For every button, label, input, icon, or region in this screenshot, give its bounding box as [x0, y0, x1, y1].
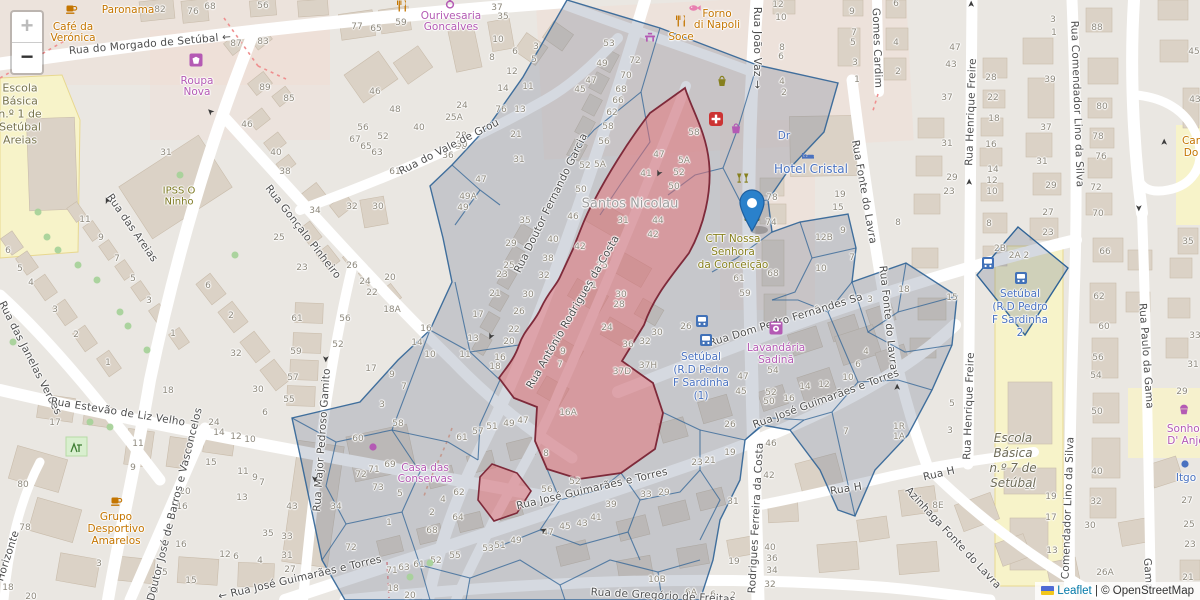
- house-number: 1A: [893, 432, 905, 442]
- house-number: 32: [346, 202, 357, 212]
- house-number: 4: [893, 38, 899, 48]
- poi-label-roupa-nova: Nova: [184, 86, 211, 98]
- house-number: 14: [497, 84, 508, 94]
- house-number: 56: [598, 137, 609, 147]
- house-number: 4: [863, 347, 869, 357]
- area-label: n.º 7 de: [989, 461, 1036, 475]
- house-number: 3: [96, 559, 102, 569]
- house-number: 76: [1095, 152, 1106, 162]
- house-number: 10: [986, 187, 997, 197]
- house-number: 10: [775, 13, 786, 23]
- house-number: 3: [379, 400, 385, 410]
- house-number: 7: [557, 360, 563, 370]
- lavandaria-sadina-machine-icon: [770, 322, 783, 335]
- house-number: 82: [154, 5, 165, 15]
- waste-basket-basket-icon: [716, 75, 729, 88]
- area-label: Escola: [2, 82, 37, 95]
- house-number: 3: [852, 58, 858, 68]
- house-number: 31: [160, 148, 171, 158]
- house-number: 24: [456, 101, 467, 111]
- house-number: 44: [652, 216, 663, 226]
- house-number: 35: [262, 529, 273, 539]
- map-marker[interactable]: [737, 189, 771, 240]
- house-number: 12: [986, 176, 997, 186]
- house-number: 1: [105, 358, 111, 368]
- playground-icon: [66, 437, 87, 456]
- house-number: 33: [1189, 331, 1200, 341]
- area-label: Areias: [3, 134, 37, 147]
- house-number: 33: [281, 532, 292, 542]
- house-number: 52: [673, 168, 684, 178]
- poi-label-ctt-post-office: da Conceição: [698, 259, 769, 271]
- house-number: 12B: [815, 233, 833, 243]
- house-number: 8: [489, 53, 495, 63]
- house-number: 5: [397, 489, 403, 499]
- house-number: 40: [270, 148, 281, 158]
- house-number: 23: [296, 263, 307, 273]
- ourivesaria-goncalves-ring-icon: [444, 0, 457, 10]
- house-number: 40: [413, 123, 424, 133]
- house-number: 4: [257, 556, 263, 566]
- area-label: Ninho: [164, 197, 193, 208]
- house-number: 62: [453, 488, 464, 498]
- house-number: 41: [590, 513, 601, 523]
- house-number: 5: [850, 38, 856, 48]
- transit-stop-label-setubal-rd-pedro-f-sardinha-1: F Sardinha: [673, 377, 729, 389]
- house-number: 45: [735, 387, 746, 397]
- house-number: 47: [585, 76, 596, 86]
- transit-stop-label-setubal-rd-pedro-f-sardinha-1: Setúbal: [681, 351, 721, 363]
- house-number: 39: [605, 500, 616, 510]
- house-number: 32: [639, 337, 650, 347]
- area-label: Santos Nicolau: [582, 197, 679, 212]
- soce-bench-bench-icon: [644, 31, 657, 43]
- house-number: 6: [893, 0, 899, 9]
- house-number: 48: [389, 105, 400, 115]
- house-number: 31: [513, 155, 524, 165]
- house-number: 2: [73, 330, 79, 340]
- house-number: 33: [640, 490, 651, 500]
- house-number: 2: [895, 67, 901, 77]
- house-number: 1: [386, 518, 392, 528]
- house-number: 11: [132, 439, 143, 449]
- grupo-desportivo-amarelos-cup-icon: [110, 495, 123, 508]
- house-number: 16: [420, 324, 431, 334]
- transit-stop-label-setubal-rd-pedro-f-sardinha-2: 2: [1017, 327, 1024, 339]
- house-number: 2B: [994, 244, 1006, 254]
- oneway-arrow-icon: ➤: [309, 475, 319, 483]
- poi-label-grupo-desportivo-amarelos: Amarelos: [91, 535, 140, 547]
- house-number: 7: [849, 253, 855, 263]
- transit-stop-label-setubal-rd-pedro-f-sardinha-2: Setúbal: [1000, 288, 1040, 300]
- house-number: 19: [1045, 492, 1056, 502]
- house-number: 16: [783, 394, 794, 404]
- house-number: 45: [559, 522, 570, 532]
- house-number: 16: [985, 140, 996, 150]
- house-number: 49: [510, 536, 521, 546]
- house-number: 62: [1093, 292, 1104, 302]
- house-number: 24: [208, 418, 219, 428]
- house-number: 5: [949, 399, 955, 409]
- oneway-arrow-icon: ➤: [893, 383, 903, 391]
- forno-di-napoli-utensils-icon: [675, 15, 687, 28]
- bus-stop-icon[interactable]: [696, 315, 708, 327]
- tree-icon: [117, 309, 124, 316]
- house-number: 63: [398, 563, 409, 573]
- house-number: 29: [505, 239, 516, 249]
- house-number: 52: [579, 161, 590, 171]
- map-canvas[interactable]: + − Leaflet | © OpenStreetMap 8276685687…: [0, 0, 1200, 600]
- house-number: 30: [651, 328, 662, 338]
- house-number: 80: [1096, 102, 1107, 112]
- house-number: 72: [345, 543, 356, 553]
- house-number: 23: [496, 270, 507, 280]
- oneway-arrow-icon: ➤: [320, 355, 330, 363]
- house-number: 31: [281, 551, 292, 561]
- tree-icon: [87, 419, 94, 426]
- house-number: 53: [603, 39, 614, 49]
- house-number: 16A: [559, 408, 577, 418]
- house-number: 34: [330, 502, 341, 512]
- house-number: 12: [818, 380, 829, 390]
- house-number: 62: [606, 108, 617, 118]
- house-number: 49: [457, 203, 468, 213]
- house-number: 17: [365, 364, 376, 374]
- house-number: 12: [230, 432, 241, 442]
- house-number: 24: [601, 323, 612, 333]
- house-number: 60: [1098, 322, 1109, 332]
- house-number: 9: [840, 226, 846, 236]
- tree-icon: [10, 339, 17, 346]
- poi-label-ourivesaria-goncalves: Goncalves: [424, 21, 478, 33]
- house-number: 8: [895, 218, 901, 228]
- house-number: 69: [384, 460, 395, 470]
- house-number: 61: [291, 314, 302, 324]
- house-number: 5A: [678, 156, 690, 166]
- house-number: 16: [175, 540, 186, 550]
- house-number: 19: [834, 190, 845, 200]
- house-number: 49: [503, 419, 514, 429]
- house-number: 17: [49, 418, 60, 428]
- house-number: 47: [949, 43, 960, 53]
- house-number: 32: [764, 580, 775, 590]
- house-number: 58: [688, 128, 699, 138]
- poi-label-hotel-cristal: Hotel Cristal: [774, 162, 848, 176]
- house-number: 18: [988, 114, 999, 124]
- house-number: 35: [519, 216, 530, 226]
- house-number: 37: [1040, 123, 1051, 133]
- house-number: 70: [1092, 209, 1103, 219]
- poi-label-grupo-desportivo-amarelos: Grupo: [100, 511, 132, 523]
- street-name-label: Rua João Vaz →: [751, 7, 763, 89]
- house-number: 24: [359, 277, 370, 287]
- poi-label-itgo: Itgo: [1176, 472, 1196, 484]
- house-number: 50: [575, 185, 586, 195]
- area-label: Escola: [994, 431, 1032, 445]
- oneway-arrow-icon: ➤: [1133, 204, 1143, 212]
- tree-icon: [107, 424, 114, 431]
- house-number: 25: [1183, 520, 1194, 530]
- house-number: 58: [602, 122, 613, 132]
- house-number: 89: [259, 83, 270, 93]
- house-number: 4: [440, 495, 446, 505]
- house-number: 42: [574, 242, 585, 252]
- house-number: 30: [1084, 521, 1095, 531]
- house-number: 13: [514, 105, 525, 115]
- house-number: 42: [647, 230, 658, 240]
- poi-label-paronama: Paronama: [102, 4, 155, 16]
- house-number: 37D: [613, 367, 631, 377]
- transit-stop-label-setubal-rd-pedro-f-sardinha-1: (1): [694, 390, 709, 402]
- house-number: 29: [946, 173, 957, 183]
- tree-icon: [232, 252, 239, 259]
- house-number: 20: [404, 591, 415, 600]
- house-number: 23: [943, 187, 954, 197]
- house-number: 26: [513, 307, 524, 317]
- house-number: 15: [832, 203, 843, 213]
- house-number: 56: [1092, 353, 1103, 363]
- house-number: 68: [204, 2, 215, 12]
- house-number: 13: [1046, 546, 1057, 556]
- house-number: 28: [985, 73, 996, 83]
- house-number: 16: [494, 353, 505, 363]
- house-number: 23: [1184, 540, 1195, 550]
- house-number: 58: [392, 419, 403, 429]
- oneway-arrow-icon: ➤: [1160, 138, 1170, 146]
- house-number: 12: [772, 0, 783, 10]
- house-number: 18A: [383, 305, 401, 315]
- house-number: 78: [1092, 132, 1103, 142]
- house-number: 19: [724, 448, 735, 458]
- oneway-arrow-icon: ➤: [965, 178, 975, 186]
- house-number: 6: [205, 281, 211, 291]
- fishmonger-fish-icon: [689, 2, 702, 15]
- house-number: 63: [371, 148, 382, 158]
- house-number: 13: [467, 334, 478, 344]
- house-number: 57: [287, 373, 298, 383]
- house-number: 47: [653, 150, 664, 160]
- house-number: 51: [486, 422, 497, 432]
- itgo-dot-icon: [1180, 459, 1190, 469]
- house-number: 19: [728, 557, 739, 567]
- restaurant-top-utensils-icon: [396, 0, 408, 13]
- transit-stop-label-setubal-rd-pedro-f-sardinha-1: (R.D Pedro: [673, 364, 728, 376]
- house-number: 15: [185, 576, 196, 586]
- house-number: 28: [613, 300, 624, 310]
- house-number: 80: [17, 480, 28, 490]
- house-number: 68: [615, 85, 626, 95]
- openstreetmap-link[interactable]: © OpenStreetMap: [1101, 585, 1194, 597]
- house-number: 17: [472, 310, 483, 320]
- house-number: 6: [778, 52, 784, 62]
- house-number: 56: [257, 1, 268, 11]
- tree-icon: [407, 574, 414, 581]
- house-number: 43: [1189, 95, 1200, 105]
- house-number: 47: [737, 372, 748, 382]
- house-number: 7: [401, 382, 407, 392]
- roupa-nova-shop-icon: [190, 54, 203, 67]
- house-number: 73: [372, 483, 383, 493]
- house-number: 46: [369, 87, 380, 97]
- house-number: 85: [283, 94, 294, 104]
- poi-label-car-do: Do: [1184, 147, 1199, 159]
- attribution-separator: |: [1092, 585, 1101, 597]
- house-number: 50: [668, 182, 679, 192]
- house-number: 72: [629, 56, 640, 66]
- house-number: 20: [503, 337, 514, 347]
- house-number: 3: [1050, 15, 1056, 25]
- house-number: 77: [351, 22, 362, 32]
- house-number: 35: [497, 12, 508, 22]
- house-number: 1: [1051, 28, 1057, 38]
- house-number: 26: [724, 420, 735, 430]
- house-number: 14: [799, 382, 810, 392]
- house-number: 18: [898, 285, 909, 295]
- house-number: 22: [508, 325, 519, 335]
- house-number: 88: [1091, 23, 1102, 33]
- house-number: 25: [273, 233, 284, 243]
- house-number: 83: [257, 37, 268, 47]
- house-number: 9: [849, 7, 855, 17]
- house-number: 11: [459, 350, 470, 360]
- house-number: 27: [1181, 496, 1192, 506]
- house-number: 59: [395, 18, 406, 28]
- house-number: 1R: [893, 422, 905, 432]
- house-number: 36: [622, 340, 633, 350]
- house-number: 29: [1045, 181, 1056, 191]
- house-number: 68: [767, 269, 778, 279]
- house-number: 41: [640, 169, 651, 179]
- house-number: 15: [205, 458, 216, 468]
- transit-stop-label-setubal-rd-pedro-f-sardinha-2: (R.D Pedro: [992, 301, 1047, 313]
- zoom-in-button[interactable]: +: [12, 12, 42, 43]
- area-label: Básica: [993, 446, 1032, 460]
- house-number: 15: [946, 293, 957, 303]
- tree-icon: [44, 234, 51, 241]
- house-number: 21: [704, 456, 715, 466]
- area-label: Setúbal: [0, 121, 41, 134]
- house-number: 67: [349, 135, 360, 145]
- house-number: 59: [739, 289, 750, 299]
- house-number: 50: [1091, 407, 1102, 417]
- house-number: 66: [612, 96, 623, 106]
- house-number: 35: [1182, 237, 1193, 247]
- attribution: Leaflet | © OpenStreetMap: [1035, 582, 1200, 600]
- house-number: 5: [17, 264, 23, 274]
- house-number: 53: [482, 544, 493, 554]
- house-number: 18: [489, 362, 500, 372]
- house-number: 76: [495, 105, 506, 115]
- area-label: n.º 1 de: [0, 108, 42, 121]
- tree-icon: [177, 172, 184, 179]
- leaflet-link[interactable]: Leaflet: [1057, 585, 1092, 597]
- house-number: 14: [213, 428, 224, 438]
- house-number: 3: [533, 42, 539, 52]
- house-number: 11: [522, 82, 533, 92]
- house-number: 45: [574, 85, 585, 95]
- area-label: Setúbal: [990, 476, 1036, 490]
- ukraine-flag-icon: [1041, 586, 1054, 595]
- house-number: 21: [510, 130, 521, 140]
- bus-stop-icon[interactable]: [700, 334, 712, 346]
- house-number: 10: [244, 435, 255, 445]
- house-number: 2A 2: [1009, 251, 1029, 261]
- house-number: 31: [1187, 360, 1198, 370]
- house-number: 56: [357, 123, 368, 133]
- house-number: 64: [452, 513, 463, 523]
- house-number: 47: [517, 416, 528, 426]
- house-number: 4: [779, 77, 785, 87]
- house-number: 3: [947, 426, 953, 436]
- house-number: 2: [228, 311, 234, 321]
- poi-label-car-do: Car: [1182, 135, 1200, 147]
- house-number: 4: [28, 278, 34, 288]
- house-number: 61: [456, 433, 467, 443]
- house-number: 30: [522, 290, 533, 300]
- house-number: 72: [1090, 183, 1101, 193]
- house-number: 55: [283, 395, 294, 405]
- house-number: 22: [987, 93, 998, 103]
- house-number: 12: [219, 550, 230, 560]
- house-number: 54: [767, 366, 778, 376]
- house-number: 71: [386, 566, 397, 576]
- house-number: 7: [851, 28, 857, 38]
- zoom-out-button[interactable]: −: [12, 43, 42, 73]
- house-number: 6: [233, 552, 239, 562]
- house-number: 6: [5, 246, 11, 256]
- house-number: 61: [733, 274, 744, 284]
- house-number: 9: [252, 473, 258, 483]
- house-number: 5: [531, 55, 537, 65]
- poi-label-cafe-da-veronica: Verónica: [50, 32, 95, 44]
- house-number: 7: [259, 478, 265, 488]
- house-number: 29: [1176, 387, 1187, 397]
- house-number: 29: [658, 488, 669, 498]
- house-number: 20: [384, 273, 395, 283]
- house-number: 18: [387, 584, 398, 594]
- house-number: 39: [1044, 75, 1055, 85]
- house-number: 52: [377, 132, 388, 142]
- house-number: 26A: [1096, 568, 1114, 578]
- house-number: 13: [236, 493, 247, 503]
- house-number: 20: [25, 592, 36, 600]
- house-number: 76: [187, 7, 198, 17]
- house-number: 55: [449, 551, 460, 561]
- pharmacy-cross-icon: [709, 112, 723, 126]
- house-number: 3: [867, 295, 873, 305]
- bus-stop-icon[interactable]: [982, 257, 994, 269]
- house-number: 7: [114, 254, 120, 264]
- tree-icon: [75, 262, 82, 269]
- house-number: 59: [290, 347, 301, 357]
- bus-stop-icon[interactable]: [1015, 272, 1027, 284]
- poi-label-lavandaria-sadina: Sadinã: [758, 354, 794, 366]
- house-number: 38: [279, 167, 290, 177]
- house-number: 30: [372, 202, 383, 212]
- house-number: 38: [542, 254, 553, 264]
- house-number: 14: [411, 338, 422, 348]
- house-number: 2: [429, 508, 435, 518]
- house-number: 51: [494, 541, 505, 551]
- house-number: 31: [727, 497, 738, 507]
- house-number: 40: [1091, 467, 1102, 477]
- house-number: 23: [691, 458, 702, 468]
- house-number: 32: [538, 271, 549, 281]
- transit-stop-label-setubal-rd-pedro-f-sardinha-2: F Sardinha: [992, 314, 1048, 326]
- house-number: 52: [332, 340, 343, 350]
- house-number: 1: [170, 329, 176, 339]
- house-number: 57: [472, 427, 483, 437]
